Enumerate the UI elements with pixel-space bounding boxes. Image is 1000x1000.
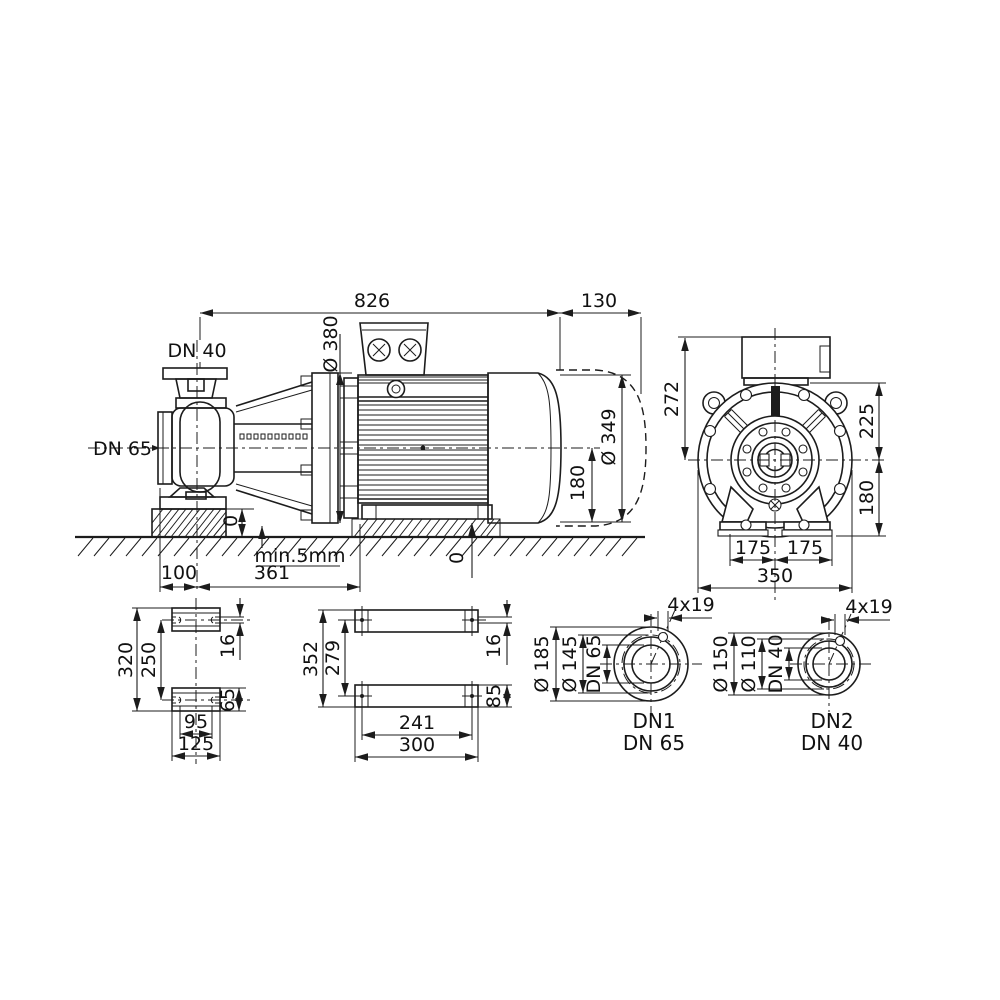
dim-zero-motor-side: 0 xyxy=(446,523,472,578)
label-suction-dn65-text: DN 65 xyxy=(93,438,152,460)
end-view: 272 225 180 175 175 350 xyxy=(661,328,886,600)
screw-icon xyxy=(373,344,385,356)
dim-175-175: 175 175 xyxy=(730,534,832,566)
motor-feet xyxy=(352,505,500,537)
dim-361: 361 xyxy=(254,562,290,584)
dim-241: 241 xyxy=(399,712,435,734)
terminal-box-end xyxy=(742,337,830,385)
flange2-size: DN 40 xyxy=(801,731,863,755)
dim-175-right: 175 xyxy=(787,537,823,559)
dim-flange-dia: Ø 380 xyxy=(320,315,352,523)
dim-foot-65: 65 xyxy=(217,688,239,712)
flange2-bolt-hole xyxy=(836,637,845,646)
dim-225: 225 xyxy=(856,403,878,439)
dim-zero-left: 0 xyxy=(220,515,242,527)
dim-125: 125 xyxy=(178,733,214,755)
flange2-bolt-circle: Ø 110 xyxy=(738,635,760,692)
dim-300: 300 xyxy=(399,734,435,756)
dim-slot-16: 16 xyxy=(217,634,239,658)
dim-250: 250 xyxy=(138,620,161,700)
dim-279: 279 xyxy=(322,640,344,676)
pump-dimensional-drawing: 826 130 Ø 380 DN 40 DN 65 Ø 349 1 xyxy=(0,0,1000,1000)
flange1-bore: DN 65 xyxy=(583,634,605,693)
dim-motor-diameter: Ø 349 xyxy=(598,408,620,465)
dim-175-left: 175 xyxy=(735,537,771,559)
label-discharge-dn40: DN 40 xyxy=(167,340,226,362)
motor-body xyxy=(358,375,488,503)
drawing-canvas: 826 130 Ø 380 DN 40 DN 65 Ø 349 1 xyxy=(0,0,1000,1000)
dim-250: 250 xyxy=(138,642,160,678)
motor-feet-plan: 352 279 16 85 241 xyxy=(300,600,512,762)
flange2-holes-label: 4x19 xyxy=(845,596,893,618)
flange1-name: DN1 xyxy=(632,709,675,733)
flange2-bore: DN 40 xyxy=(765,634,787,693)
dim-flange-diameter: Ø 380 xyxy=(320,315,342,372)
dim-350: 350 xyxy=(757,565,793,587)
lantern-vent-holes xyxy=(240,434,307,439)
flange-dn2-view: 4x19 Ø 150 Ø 110 DN 40 DN2 DN 40 xyxy=(710,596,893,755)
pump-feet-plan: 320 250 16 65 95 125 xyxy=(115,598,252,764)
pump-pedestal xyxy=(152,509,226,537)
flange1-bolt-hole xyxy=(659,633,668,642)
dim-zero-right: 0 xyxy=(446,552,468,564)
flange1-bolt-circle: Ø 145 xyxy=(559,635,581,692)
dim-352: 352 xyxy=(300,641,322,677)
label-suction-dn65: DN 65 xyxy=(93,438,160,460)
dim-272: 272 xyxy=(661,381,683,417)
flange-dn1-view: 4x19 Ø 185 Ø 145 DN 65 DN1 DN 65 xyxy=(531,594,715,755)
dim-180-end: 180 xyxy=(856,480,878,516)
flange1-holes-callout: 4x19 xyxy=(645,594,715,631)
side-view: 826 130 Ø 380 DN 40 DN 65 Ø 349 1 xyxy=(75,290,646,592)
dim-279: 279 xyxy=(322,620,358,696)
motor-foot-bottom xyxy=(352,681,482,711)
dim-foot-85: 85 xyxy=(483,684,505,708)
lifting-eyebolt-icon xyxy=(388,381,405,398)
flange1-size: DN 65 xyxy=(623,731,685,755)
pump-volute xyxy=(172,402,234,499)
dim-85: 85 xyxy=(478,684,512,708)
flange1-holes-label: 4x19 xyxy=(667,594,715,616)
dim-slot-16-motor: 16 xyxy=(483,634,505,658)
note-grout: min.5mm xyxy=(255,526,346,567)
dim-total-length: 826 xyxy=(354,290,390,312)
dim-320: 320 xyxy=(115,642,137,678)
motor-foot-top xyxy=(352,606,486,636)
flange1-outer-dia: Ø 185 xyxy=(531,635,553,692)
flange2-name: DN2 xyxy=(810,709,853,733)
dim-95: 95 xyxy=(184,711,208,733)
dim-16-motor: 16 xyxy=(478,600,512,665)
dim-fan-length: 130 xyxy=(581,290,617,312)
dim-shaft-height: 180 xyxy=(567,465,589,501)
terminal-box xyxy=(360,323,428,375)
screw-icon xyxy=(404,344,416,356)
dim-shaft-height-180: 180 xyxy=(567,448,592,522)
flange2-holes-callout: 4x19 xyxy=(822,596,893,635)
flange2-outer-dia: Ø 150 xyxy=(710,635,732,692)
dim-130: 130 xyxy=(560,290,641,394)
dim-100: 100 xyxy=(161,562,197,584)
